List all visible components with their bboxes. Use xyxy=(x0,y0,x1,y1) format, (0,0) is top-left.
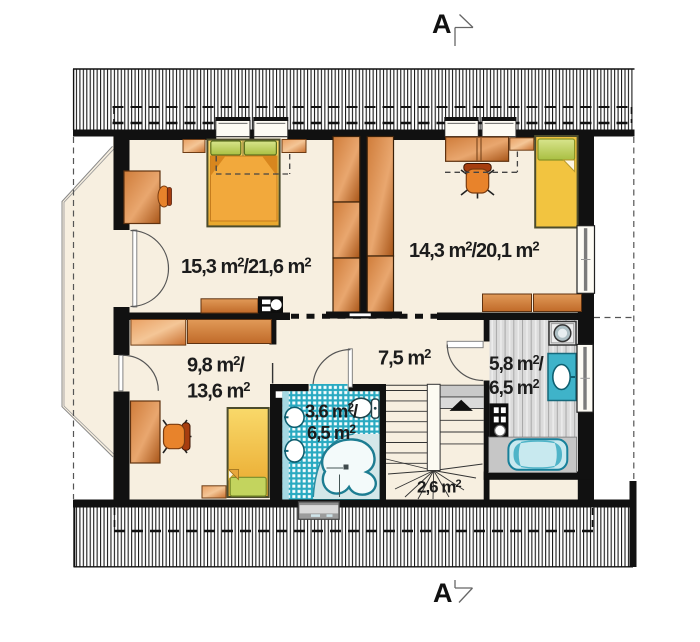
svg-text:A: A xyxy=(433,578,453,608)
svg-text:14,3 m2/20,1 m2: 14,3 m2/20,1 m2 xyxy=(409,239,539,263)
svg-text:2,6 m2: 2,6 m2 xyxy=(417,478,461,497)
svg-text:A: A xyxy=(432,9,452,39)
svg-text:7,5 m2: 7,5 m2 xyxy=(378,346,431,370)
svg-text:6,5 m2: 6,5 m2 xyxy=(489,377,540,399)
svg-text:6,5 m2: 6,5 m2 xyxy=(307,422,356,443)
svg-text:13,6 m2: 13,6 m2 xyxy=(187,379,250,403)
svg-text:15,3 m2/21,6 m2: 15,3 m2/21,6 m2 xyxy=(181,255,311,279)
